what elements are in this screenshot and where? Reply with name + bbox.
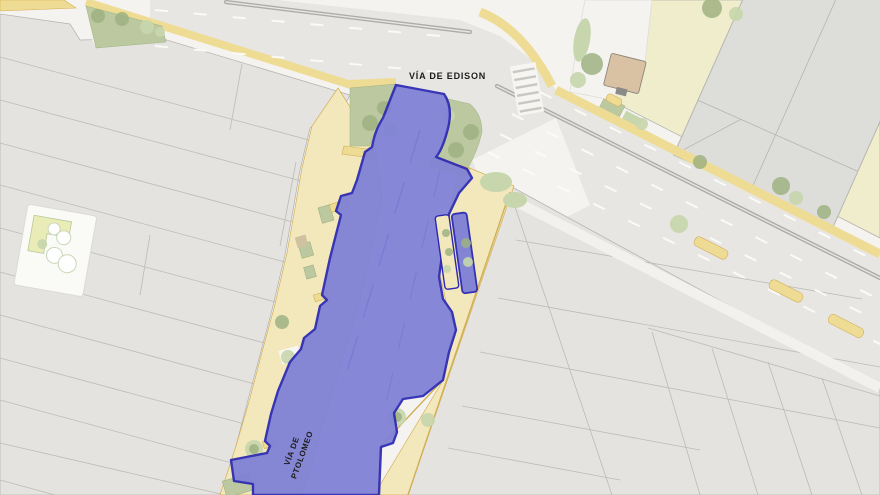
shrub-area <box>480 172 512 192</box>
street-label-edison: VÍA DE EDISON <box>409 71 486 81</box>
bush <box>443 265 451 273</box>
tree <box>789 191 803 205</box>
tree <box>91 9 105 23</box>
tree <box>140 20 154 34</box>
tree <box>729 7 743 21</box>
tree <box>570 72 586 88</box>
tree <box>636 118 648 130</box>
shrub-area <box>503 192 527 208</box>
facility-with-tanks[interactable] <box>14 204 97 297</box>
map-viewport[interactable]: VÍA DE EDISON VÍA DE PTOLOMEO <box>0 0 880 495</box>
tree <box>772 177 790 195</box>
tree <box>155 27 165 37</box>
bush <box>461 238 471 248</box>
tree <box>115 12 129 26</box>
tree <box>421 413 435 427</box>
tree <box>249 444 259 454</box>
tree <box>693 155 707 169</box>
tree <box>448 142 464 158</box>
bush <box>463 257 473 267</box>
tree <box>581 53 603 75</box>
bush <box>442 229 450 237</box>
tree <box>362 115 378 131</box>
tree <box>670 215 688 233</box>
tree <box>817 205 831 219</box>
tree <box>275 315 289 329</box>
map-canvas[interactable]: VÍA DE EDISON VÍA DE PTOLOMEO <box>0 0 880 495</box>
bush <box>445 248 453 256</box>
tree <box>463 124 479 140</box>
